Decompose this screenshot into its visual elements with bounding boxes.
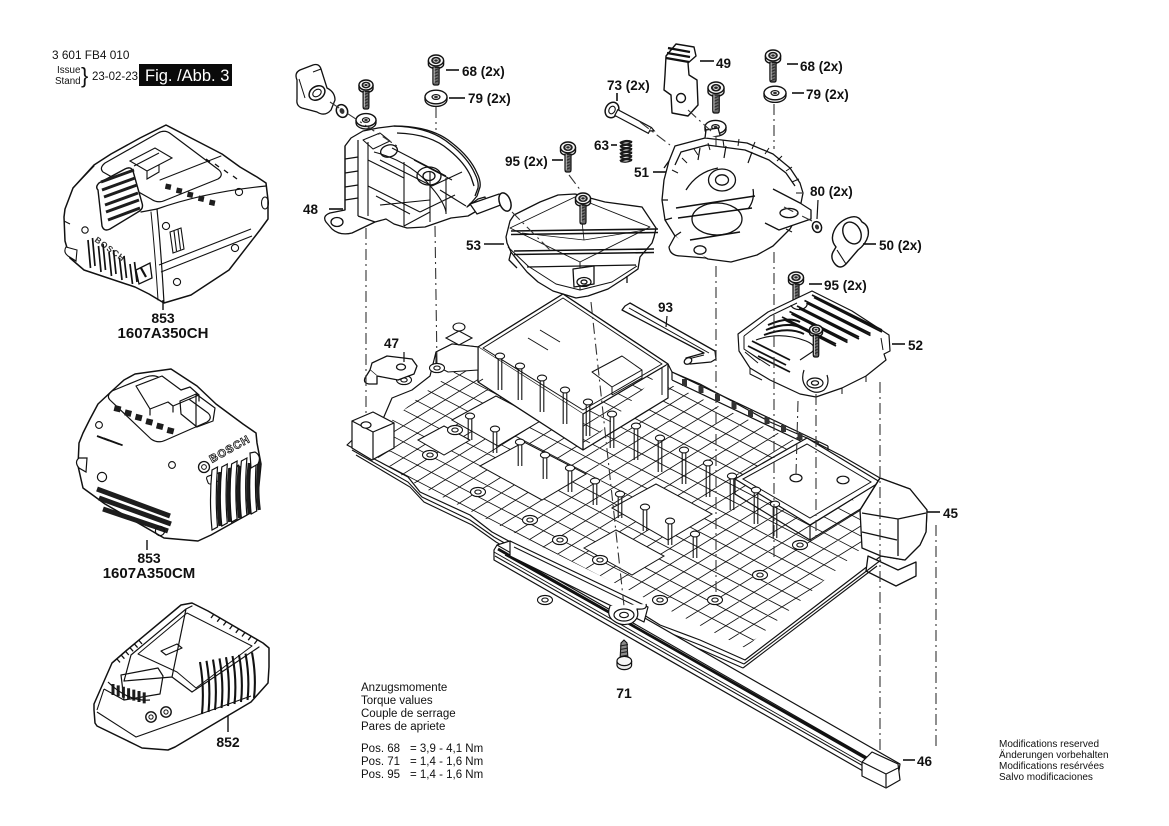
svg-text:51: 51 <box>634 165 650 180</box>
svg-text:= 3,9 - 4,1 Nm: = 3,9 - 4,1 Nm <box>410 743 483 755</box>
svg-text:Modifications reserved: Modifications reserved <box>999 739 1099 750</box>
svg-text:= 1,4 - 1,6 Nm: = 1,4 - 1,6 Nm <box>410 756 483 768</box>
svg-text:= 1,4 - 1,6 Nm: = 1,4 - 1,6 Nm <box>410 769 483 781</box>
svg-text:45: 45 <box>943 506 959 521</box>
svg-text:Pos. 71: Pos. 71 <box>361 756 400 768</box>
svg-text:Änderungen vorbehalten: Änderungen vorbehalten <box>999 749 1109 761</box>
svg-text:852: 852 <box>216 734 240 750</box>
svg-text:63: 63 <box>594 138 610 153</box>
svg-text:853: 853 <box>137 550 161 566</box>
svg-text:73 (2x): 73 (2x) <box>607 78 650 93</box>
svg-text:Anzugsmomente: Anzugsmomente <box>361 682 447 694</box>
svg-text:Couple de serrage: Couple de serrage <box>361 708 456 720</box>
svg-text:49: 49 <box>716 56 731 71</box>
svg-text:Torque values: Torque values <box>361 695 433 707</box>
svg-text:Pos. 68: Pos. 68 <box>361 743 400 755</box>
svg-text:71: 71 <box>616 685 632 701</box>
svg-text:Pos. 95: Pos. 95 <box>361 769 400 781</box>
svg-text:853: 853 <box>151 310 175 326</box>
svg-text:68 (2x): 68 (2x) <box>462 64 505 79</box>
svg-text:Issue: Issue <box>57 65 81 76</box>
svg-text:1607A350CM: 1607A350CM <box>103 565 196 582</box>
svg-text:53: 53 <box>466 238 482 253</box>
svg-text:Modifications resérvées: Modifications resérvées <box>999 761 1104 772</box>
svg-text:Stand: Stand <box>55 76 81 87</box>
svg-text:Fig. /Abb. 3: Fig. /Abb. 3 <box>145 67 229 85</box>
svg-text:3 601 FB4 010: 3 601 FB4 010 <box>52 48 130 62</box>
svg-text:95 (2x): 95 (2x) <box>505 154 548 169</box>
svg-text:1607A350CH: 1607A350CH <box>118 325 209 342</box>
svg-text:46: 46 <box>917 754 933 769</box>
svg-text:93: 93 <box>658 300 674 315</box>
svg-text:Pares de apriete: Pares de apriete <box>361 721 445 733</box>
svg-text:95 (2x): 95 (2x) <box>824 278 867 293</box>
svg-text:Salvo modificaciones: Salvo modificaciones <box>999 772 1093 783</box>
svg-text:79 (2x): 79 (2x) <box>468 91 511 106</box>
svg-text:47: 47 <box>384 336 399 351</box>
svg-text:52: 52 <box>908 338 923 353</box>
svg-text:23-02-23: 23-02-23 <box>92 71 138 83</box>
svg-text:80 (2x): 80 (2x) <box>810 184 853 199</box>
svg-text:48: 48 <box>303 202 319 217</box>
svg-text:50 (2x): 50 (2x) <box>879 238 922 253</box>
svg-text:}: } <box>81 63 88 88</box>
svg-text:68 (2x): 68 (2x) <box>800 59 843 74</box>
svg-text:79 (2x): 79 (2x) <box>806 87 849 102</box>
